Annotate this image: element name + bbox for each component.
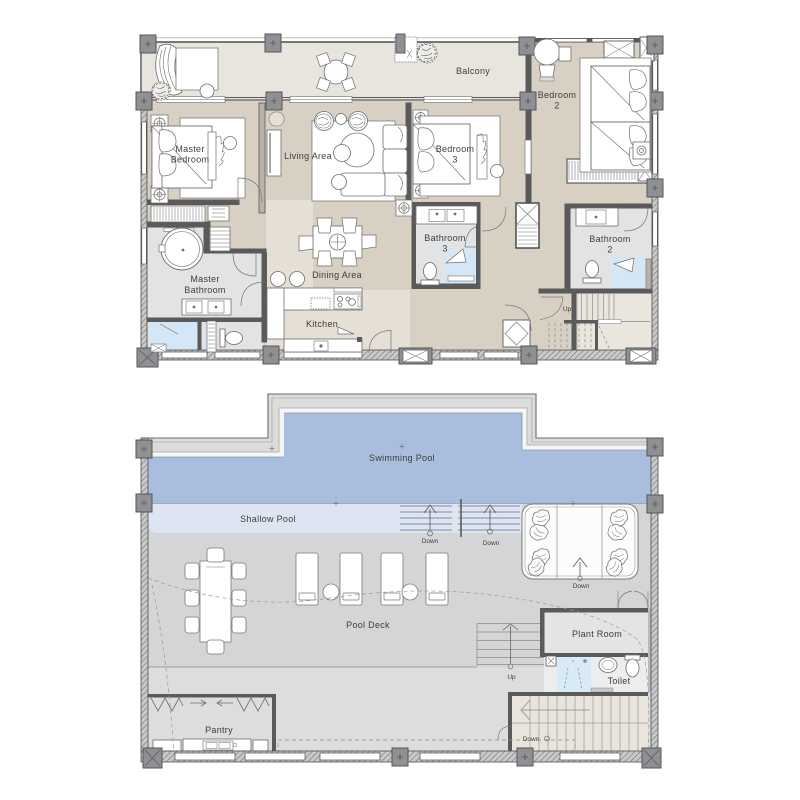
svg-text:2: 2 — [554, 101, 559, 111]
svg-text:Bathroom: Bathroom — [424, 233, 465, 243]
svg-text:Up: Up — [507, 674, 516, 681]
svg-text:Bedroom: Bedroom — [436, 144, 475, 154]
svg-text:3: 3 — [442, 244, 447, 254]
svg-text:Toilet: Toilet — [608, 676, 631, 686]
svg-text:Master: Master — [175, 144, 204, 154]
svg-text:Up: Up — [563, 306, 572, 313]
svg-text:Shallow Pool: Shallow Pool — [240, 514, 296, 524]
svg-text:Pool Deck: Pool Deck — [346, 620, 390, 630]
svg-text:Down: Down — [523, 736, 540, 743]
svg-text:Balcony: Balcony — [456, 66, 490, 76]
svg-text:Down: Down — [573, 583, 590, 590]
svg-text:2: 2 — [607, 245, 612, 255]
svg-text:Master: Master — [190, 274, 219, 284]
svg-text:Swimming Pool: Swimming Pool — [369, 453, 435, 463]
svg-text:Dining Area: Dining Area — [312, 270, 362, 280]
svg-text:Bathroom: Bathroom — [184, 285, 225, 295]
svg-text:Down: Down — [483, 540, 500, 547]
svg-text:Bedroom: Bedroom — [538, 90, 577, 100]
svg-text:Pantry: Pantry — [205, 725, 233, 735]
svg-text:Bathroom: Bathroom — [589, 234, 630, 244]
svg-text:Living Area: Living Area — [284, 151, 332, 161]
svg-text:Down: Down — [422, 538, 439, 545]
svg-text:3: 3 — [452, 155, 457, 165]
svg-text:Plant Room: Plant Room — [572, 629, 622, 639]
svg-text:Bedroom: Bedroom — [171, 155, 210, 165]
svg-text:Kitchen: Kitchen — [306, 319, 338, 329]
